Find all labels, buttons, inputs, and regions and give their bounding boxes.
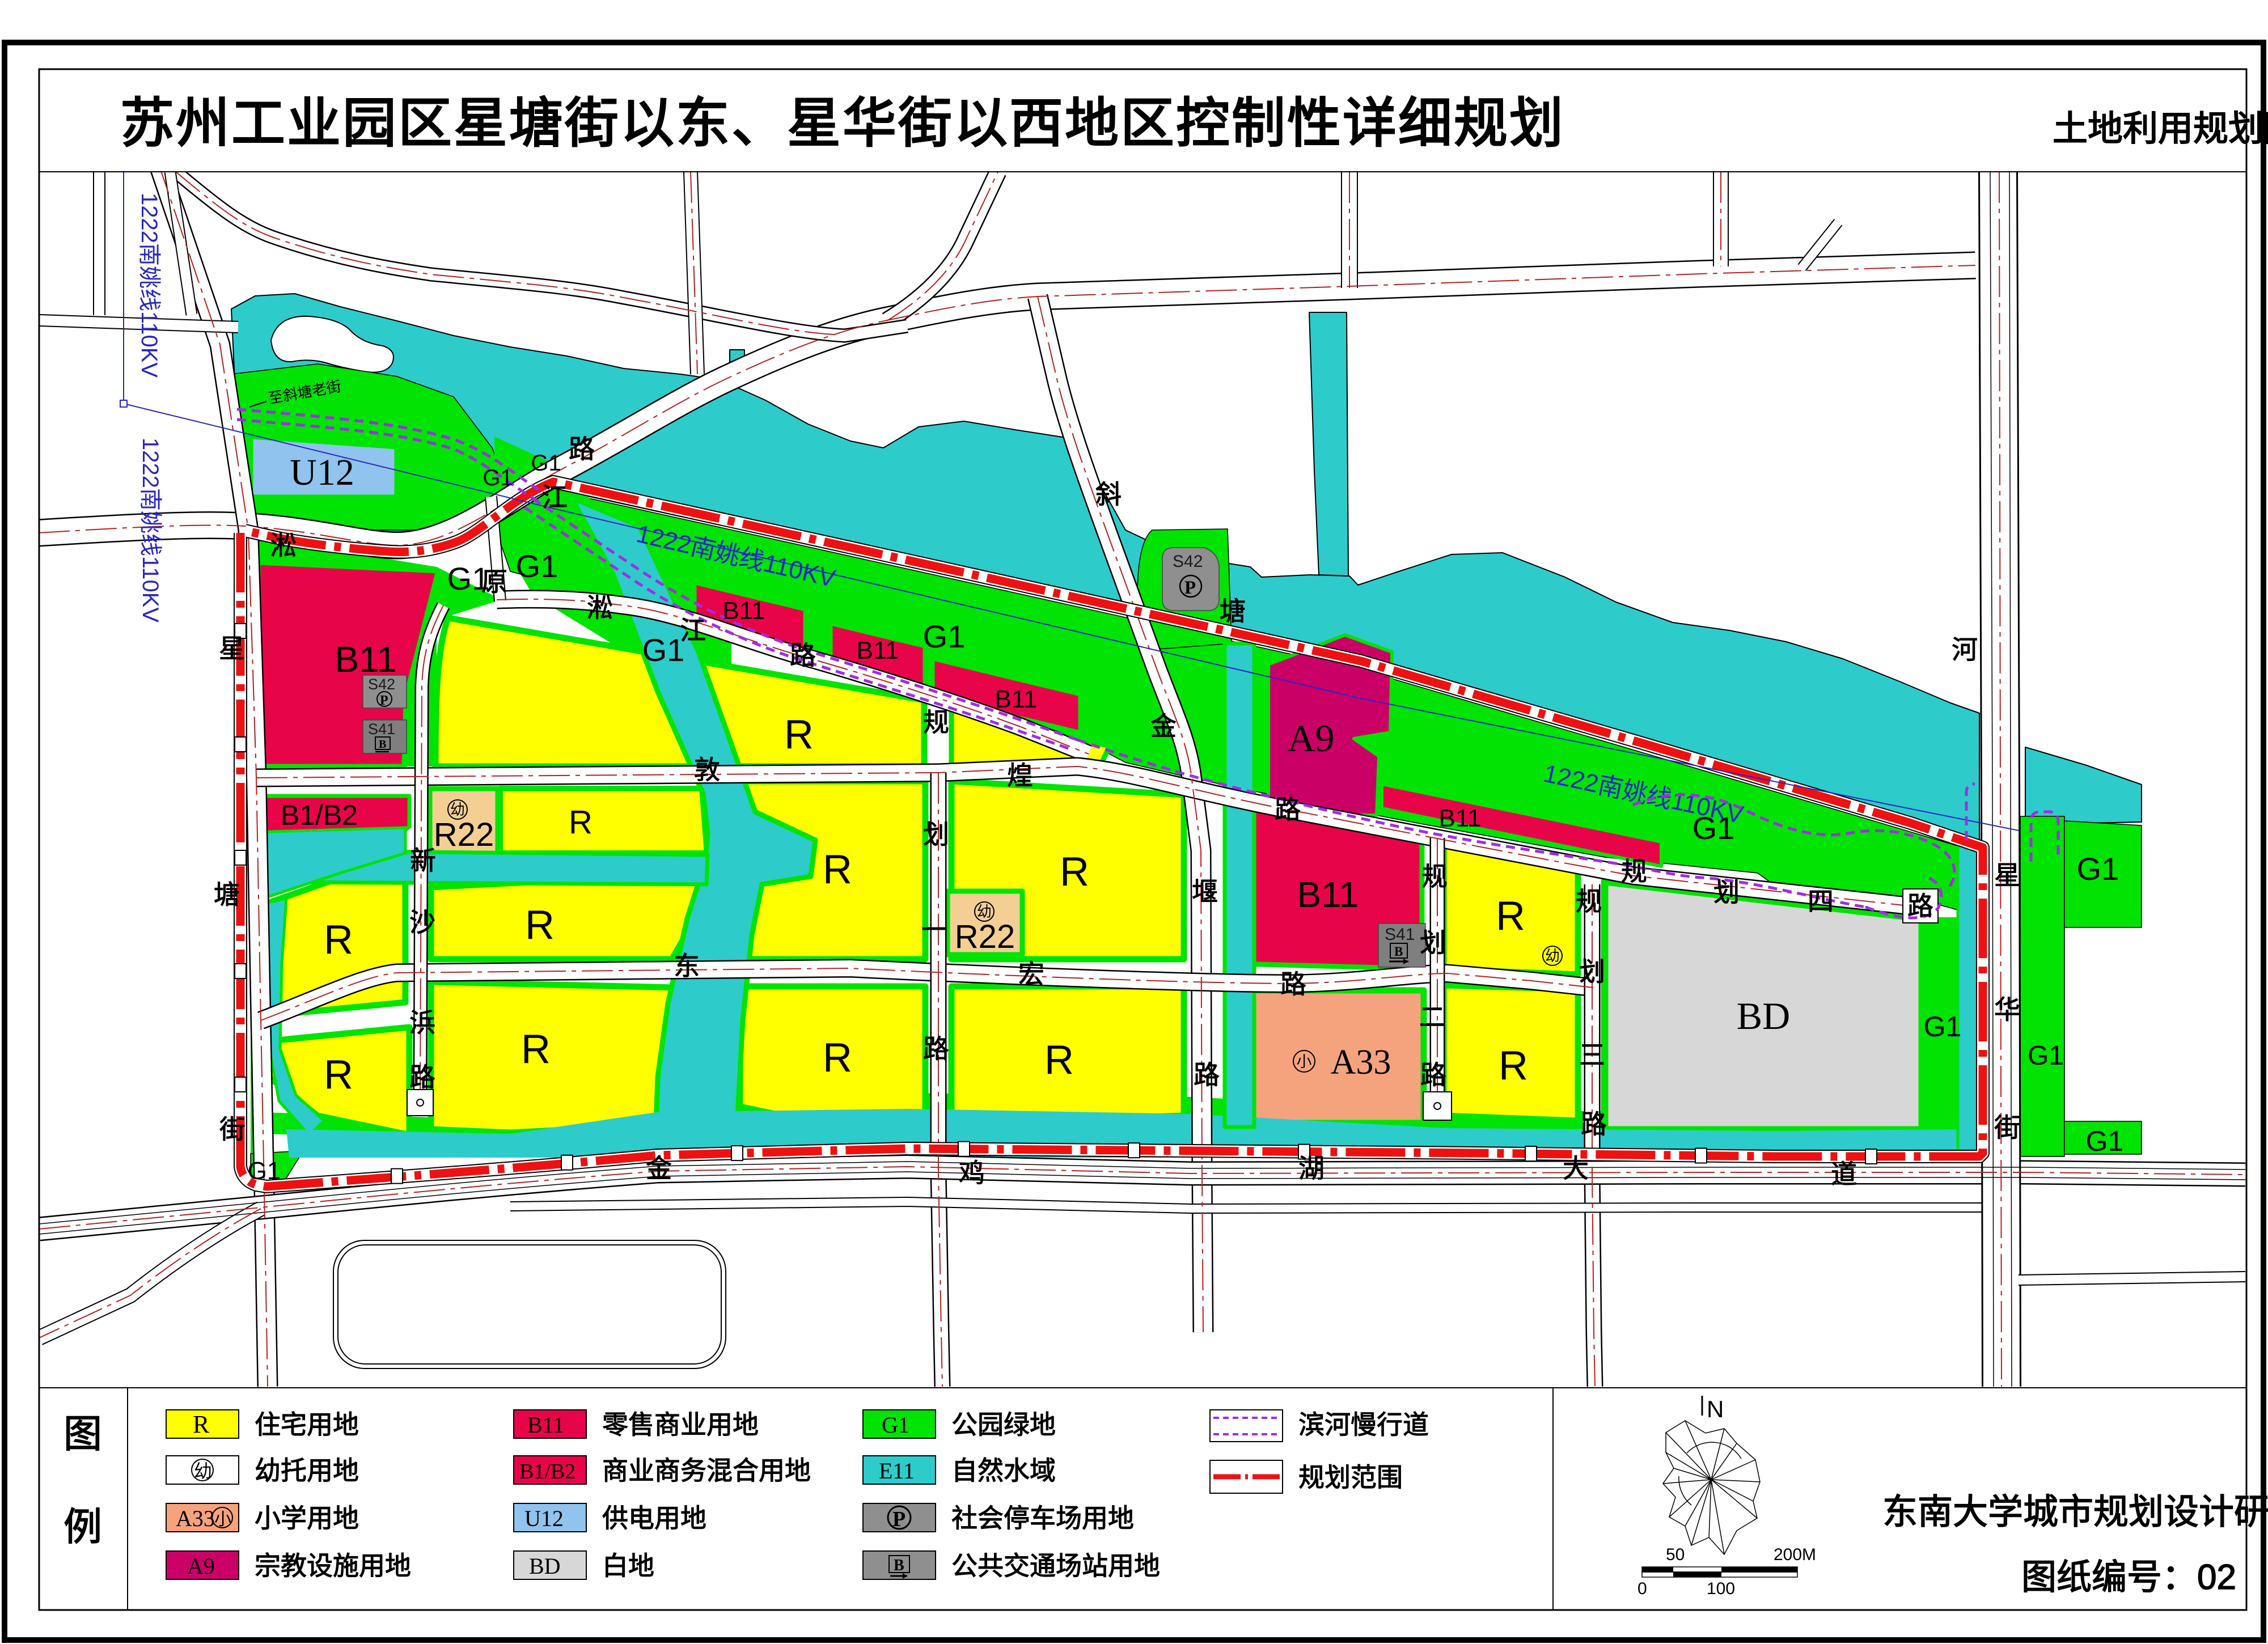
svg-text:幼: 幼 (977, 903, 992, 920)
svg-text:R: R (823, 1035, 852, 1081)
svg-text:街: 街 (1994, 1113, 2020, 1142)
svg-text:路: 路 (790, 641, 816, 670)
svg-text:A9: A9 (187, 1553, 215, 1579)
svg-text:例: 例 (64, 1506, 102, 1549)
svg-text:星: 星 (1994, 861, 2020, 890)
svg-text:斜: 斜 (1095, 480, 1122, 509)
svg-text:1222南姚线110KV: 1222南姚线110KV (137, 193, 162, 378)
svg-text:P: P (892, 1507, 905, 1531)
svg-text:新: 新 (410, 846, 436, 875)
svg-text:R: R (1060, 849, 1089, 895)
svg-text:鸡: 鸡 (959, 1158, 985, 1188)
svg-text:敦: 敦 (694, 755, 720, 785)
svg-text:B1/B2: B1/B2 (281, 799, 358, 831)
svg-text:小学用地: 小学用地 (255, 1503, 359, 1533)
svg-text:A9: A9 (1287, 717, 1334, 760)
svg-text:R: R (1044, 1037, 1074, 1083)
svg-text:B11: B11 (856, 637, 899, 664)
svg-text:宗教设施用地: 宗教设施用地 (255, 1551, 411, 1581)
svg-text:划: 划 (923, 820, 949, 849)
svg-text:自然水域: 自然水域 (951, 1456, 1056, 1485)
svg-text:苏州工业园区星塘街以东、星华街以西地区控制性详细规划: 苏州工业园区星塘街以东、星华街以西地区控制性详细规划 (120, 94, 1565, 154)
svg-text:100: 100 (1707, 1579, 1735, 1598)
svg-text:路: 路 (1581, 1109, 1607, 1139)
svg-text:R: R (569, 804, 593, 841)
svg-text:二: 二 (1419, 1002, 1445, 1032)
svg-text:河: 河 (1952, 635, 1978, 664)
svg-text:R: R (1499, 1043, 1528, 1088)
svg-text:0: 0 (1637, 1579, 1647, 1598)
svg-text:塘: 塘 (1220, 596, 1246, 626)
svg-text:规: 规 (1421, 862, 1448, 891)
svg-text:1222南姚线110KV: 1222南姚线110KV (138, 438, 163, 622)
svg-text:BD: BD (1737, 994, 1790, 1037)
svg-text:S42: S42 (1173, 552, 1203, 571)
svg-text:淞: 淞 (270, 531, 297, 560)
svg-text:R22: R22 (434, 816, 494, 853)
svg-text:图纸编号：02: 图纸编号：02 (2021, 1558, 2236, 1597)
svg-text:住宅用地: 住宅用地 (255, 1410, 359, 1439)
svg-text:R: R (823, 847, 852, 892)
svg-text:200M: 200M (1774, 1545, 1816, 1564)
svg-text:划: 划 (1713, 878, 1740, 907)
svg-text:R: R (193, 1410, 210, 1438)
svg-text:R: R (784, 712, 814, 757)
svg-text:G1: G1 (642, 632, 685, 668)
svg-text:G1: G1 (447, 561, 490, 596)
svg-text:煌: 煌 (1007, 761, 1033, 790)
svg-text:G1: G1 (882, 1412, 909, 1438)
svg-text:R: R (521, 1027, 551, 1072)
svg-text:R22: R22 (955, 918, 1015, 955)
svg-text:G1: G1 (483, 465, 513, 490)
svg-text:路: 路 (1194, 1060, 1220, 1090)
svg-text:规: 规 (923, 707, 949, 737)
svg-text:G1: G1 (923, 618, 966, 654)
svg-text:G1: G1 (1924, 1011, 1962, 1043)
svg-text:街: 街 (219, 1115, 246, 1144)
svg-text:社会停车场用地: 社会停车场用地 (951, 1503, 1134, 1533)
svg-text:华: 华 (1994, 995, 2020, 1024)
svg-text:划: 划 (1420, 928, 1446, 957)
svg-text:B: B (1394, 944, 1403, 959)
svg-text:土地利用规划图: 土地利用规划图 (2053, 109, 2268, 149)
svg-text:N: N (1707, 1396, 1724, 1422)
svg-text:B11: B11 (527, 1412, 564, 1438)
svg-text:G1: G1 (531, 451, 561, 476)
svg-text:幼: 幼 (194, 1461, 212, 1481)
svg-text:B1/B2: B1/B2 (519, 1460, 576, 1484)
svg-text:供电用地: 供电用地 (602, 1503, 706, 1533)
svg-text:零售商业用地: 零售商业用地 (602, 1410, 759, 1439)
svg-text:浜: 浜 (409, 1008, 435, 1037)
svg-text:G1: G1 (2077, 851, 2119, 887)
svg-text:B: B (894, 1557, 904, 1574)
svg-text:S41: S41 (1385, 925, 1415, 944)
svg-text:滨河慢行道: 滨河慢行道 (1298, 1410, 1429, 1439)
svg-text:一: 一 (921, 915, 947, 944)
svg-text:A33: A33 (1331, 1043, 1391, 1082)
svg-text:图: 图 (64, 1413, 102, 1456)
svg-text:50: 50 (1666, 1545, 1685, 1564)
svg-text:G1: G1 (2086, 1125, 2124, 1157)
svg-text:三: 三 (1579, 1040, 1605, 1070)
svg-text:E11: E11 (879, 1458, 915, 1484)
svg-text:U12: U12 (524, 1506, 564, 1531)
svg-text:BD: BD (529, 1553, 561, 1579)
svg-text:R: R (324, 917, 353, 963)
svg-text:小: 小 (1297, 1053, 1312, 1070)
svg-text:公园绿地: 公园绿地 (951, 1410, 1056, 1439)
svg-text:P: P (380, 693, 388, 708)
svg-text:B11: B11 (1297, 874, 1359, 915)
svg-text:东: 东 (674, 951, 700, 981)
svg-text:商业商务混合用地: 商业商务混合用地 (602, 1456, 811, 1485)
svg-text:江: 江 (541, 482, 568, 512)
svg-text:金: 金 (1150, 711, 1177, 741)
svg-text:幼托用地: 幼托用地 (255, 1456, 359, 1485)
svg-text:规: 规 (1621, 857, 1647, 886)
svg-text:R: R (1496, 893, 1525, 939)
svg-text:G1: G1 (248, 1157, 281, 1185)
svg-text:公共交通场站用地: 公共交通场站用地 (951, 1551, 1160, 1581)
svg-text:G1: G1 (1692, 810, 1735, 846)
svg-text:幼: 幼 (1545, 947, 1560, 964)
svg-text:A33: A33 (176, 1506, 215, 1531)
svg-text:P: P (1184, 578, 1196, 598)
svg-text:划: 划 (1579, 957, 1605, 986)
svg-text:规划范围: 规划范围 (1298, 1463, 1403, 1492)
svg-text:G1: G1 (516, 548, 558, 584)
svg-text:幼: 幼 (450, 801, 465, 818)
svg-text:道: 道 (1831, 1159, 1857, 1189)
svg-text:R: R (525, 902, 555, 948)
svg-text:B11: B11 (995, 685, 1037, 713)
svg-text:路: 路 (1907, 891, 1933, 921)
svg-text:路: 路 (923, 1034, 949, 1063)
svg-text:白地: 白地 (602, 1551, 654, 1581)
svg-text:路: 路 (1275, 795, 1301, 824)
svg-text:小: 小 (214, 1510, 231, 1529)
svg-text:堰: 堰 (1192, 877, 1218, 906)
svg-text:沙: 沙 (409, 908, 435, 937)
svg-text:R: R (324, 1052, 353, 1098)
svg-text:G1: G1 (2028, 1041, 2064, 1071)
svg-text:B11: B11 (335, 639, 396, 680)
svg-text:B11: B11 (722, 597, 765, 625)
svg-text:金: 金 (646, 1154, 672, 1183)
svg-text:湖: 湖 (1298, 1154, 1325, 1183)
svg-text:淞: 淞 (587, 593, 613, 622)
svg-text:S41: S41 (368, 721, 395, 738)
svg-text:路: 路 (1420, 1060, 1446, 1090)
svg-text:B: B (379, 738, 386, 751)
svg-text:塘: 塘 (214, 880, 240, 909)
svg-text:U12: U12 (290, 452, 354, 493)
svg-text:规: 规 (1576, 887, 1602, 916)
svg-text:路: 路 (569, 434, 595, 464)
svg-text:B11: B11 (1438, 804, 1481, 832)
svg-text:宏: 宏 (1018, 959, 1044, 989)
svg-text:东南大学城市规划设计研究院: 东南大学城市规划设计研究院 (1882, 1493, 2268, 1532)
svg-text:四: 四 (1808, 887, 1834, 916)
svg-text:路: 路 (409, 1062, 435, 1092)
svg-text:星: 星 (219, 634, 245, 663)
svg-text:路: 路 (1280, 969, 1306, 999)
svg-text:大: 大 (1563, 1154, 1589, 1183)
